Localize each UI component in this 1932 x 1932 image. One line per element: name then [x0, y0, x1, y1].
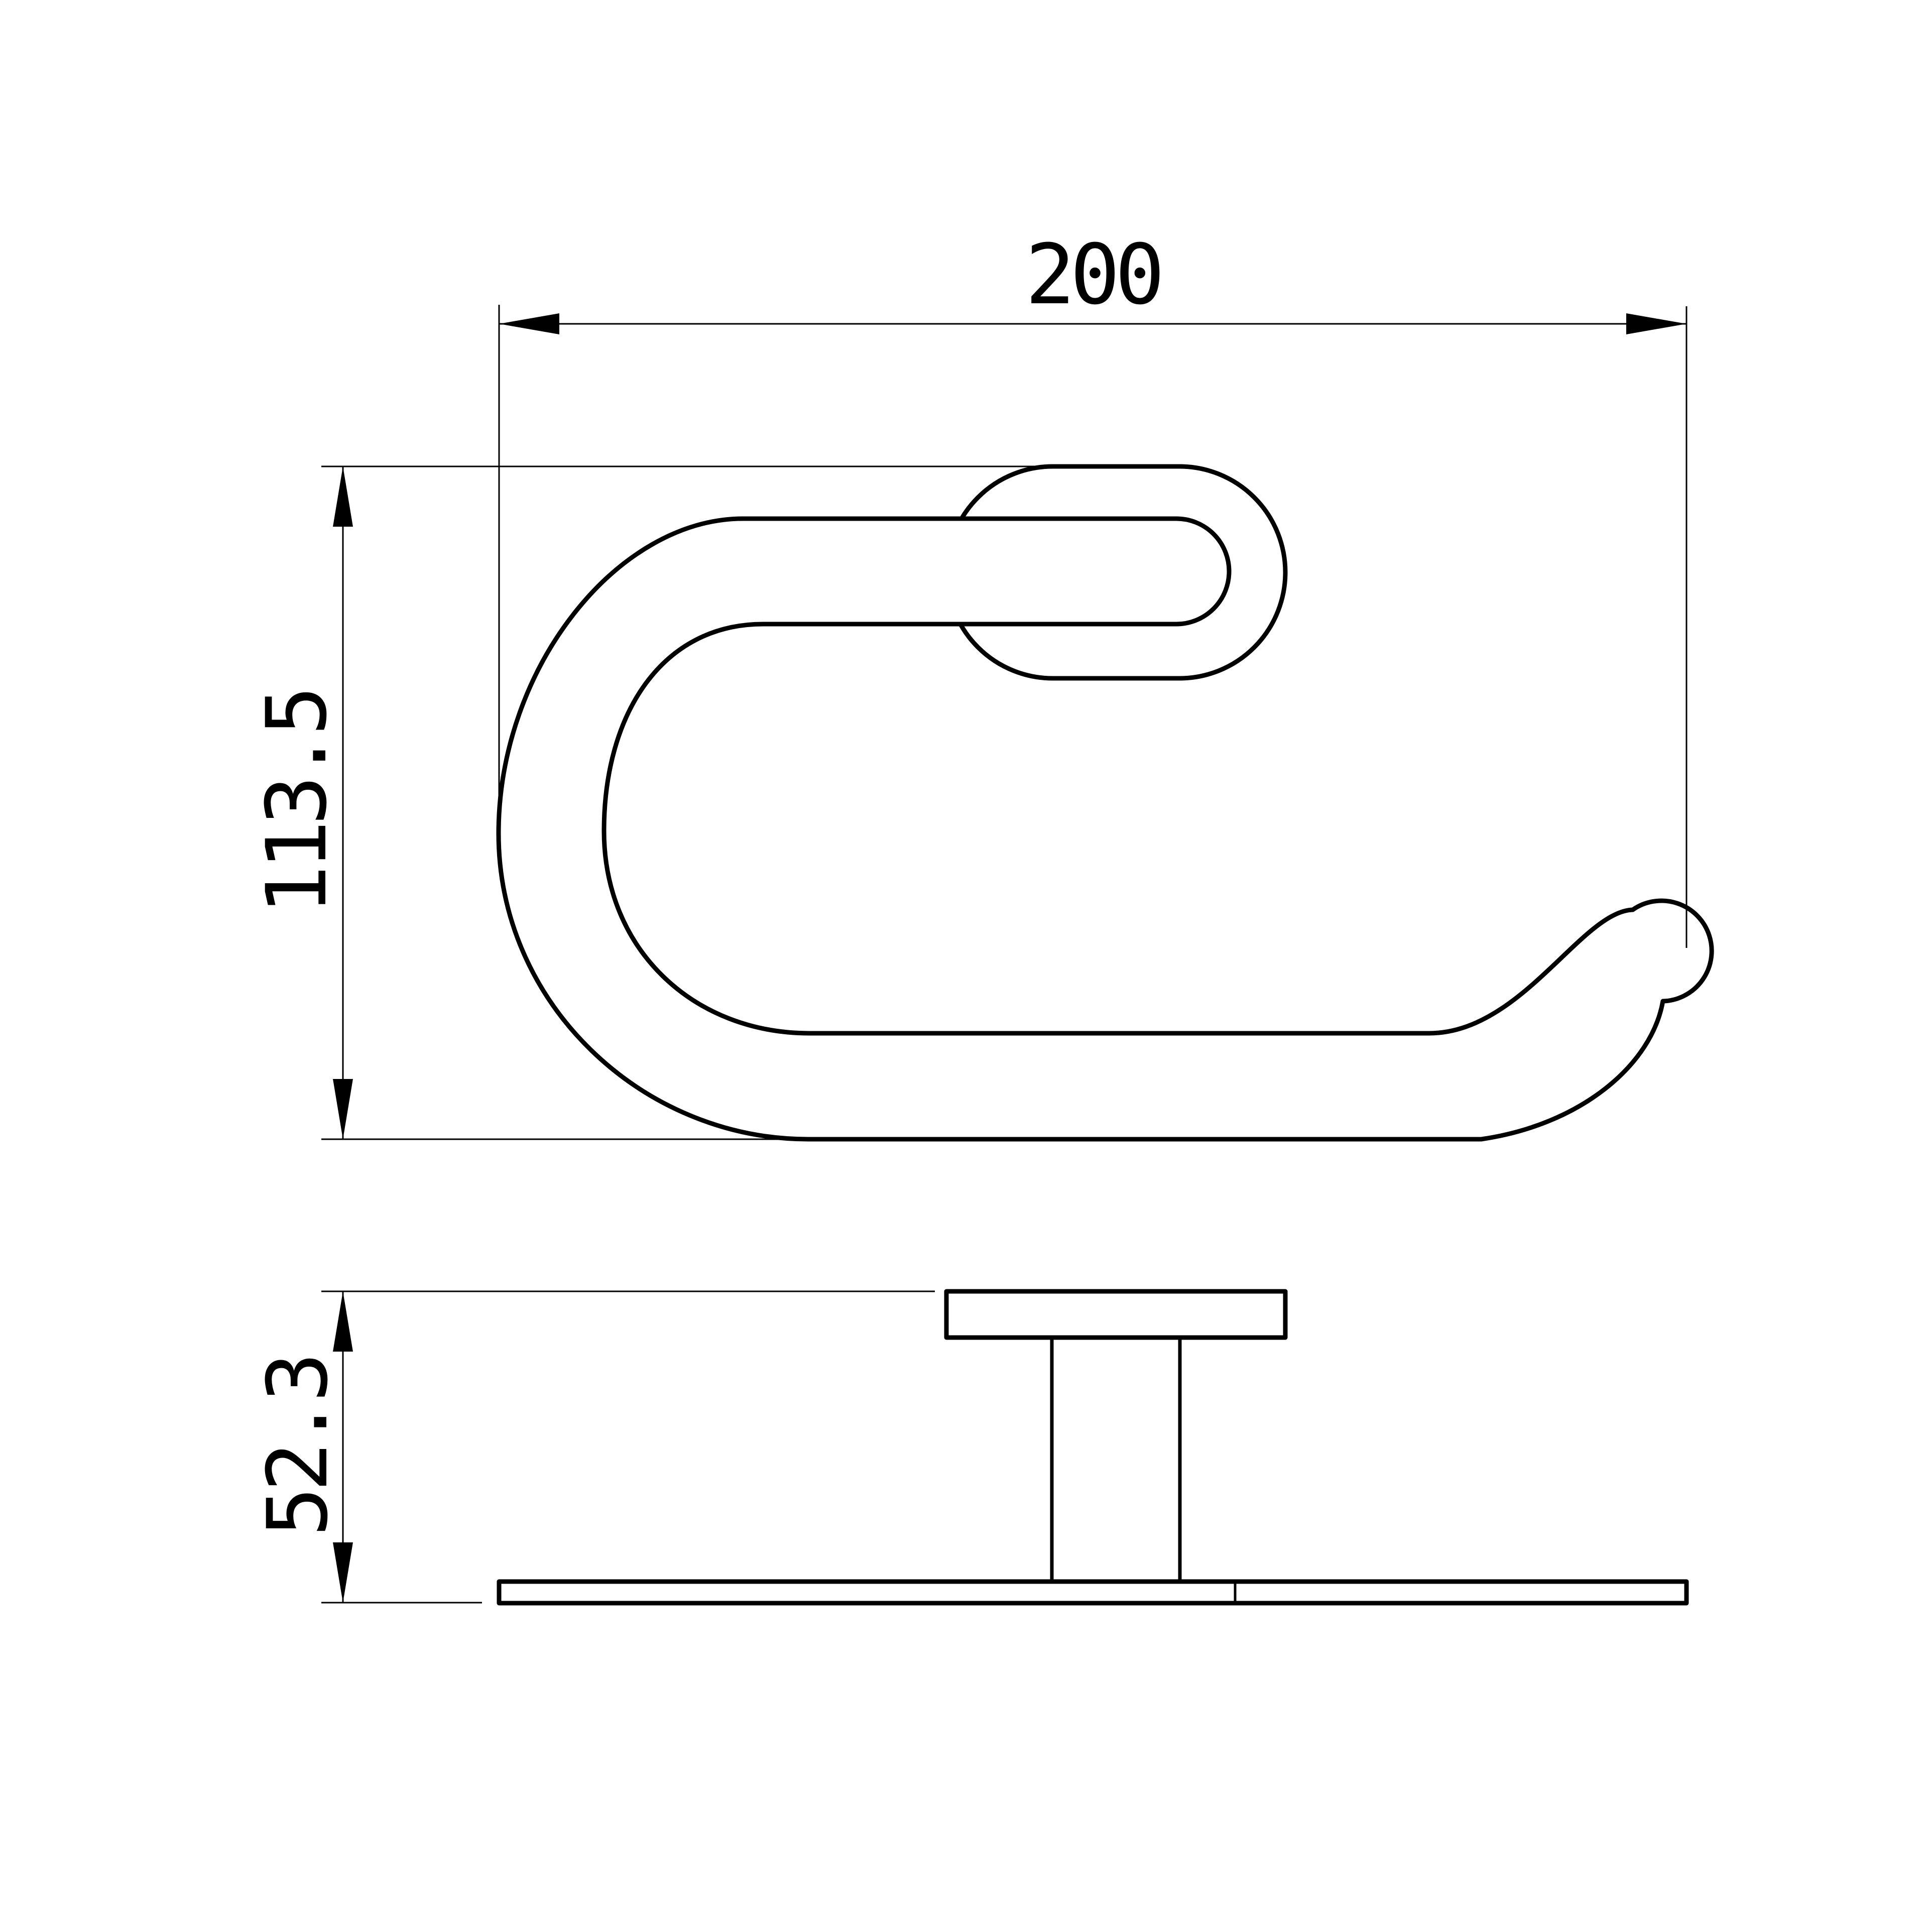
- technical-drawing: 200 113.5 52.3: [0, 0, 1932, 1932]
- depth-arrow-bottom: [333, 1542, 353, 1603]
- front-view: [499, 466, 1712, 1139]
- height-arrow-bottom: [333, 1079, 353, 1139]
- side-view: [499, 1291, 1686, 1603]
- width-arrow-left: [499, 313, 559, 334]
- depth-arrow-top: [333, 1291, 353, 1352]
- depth-dimension-text: 52.3: [250, 1357, 346, 1536]
- height-arrow-top: [333, 466, 353, 527]
- height-dimension-text: 113.5: [249, 691, 345, 915]
- towel-ring-outline: [499, 519, 1712, 1139]
- width-arrow-right: [1626, 313, 1686, 334]
- side-plate-outline: [946, 1291, 1285, 1338]
- width-dimension-text: 200: [1025, 226, 1160, 323]
- dimension-depth: 52.3: [250, 1291, 935, 1603]
- ring-edge-bar: [499, 1582, 1686, 1603]
